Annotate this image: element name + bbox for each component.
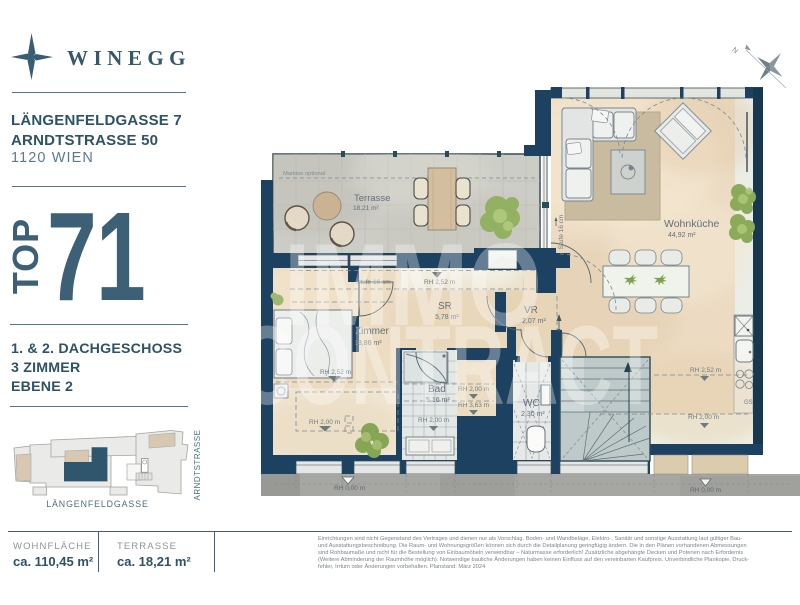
svg-text:Terrasse: Terrasse [354,193,390,204]
svg-text:SR: SR [438,301,452,312]
svg-text:5,16 m²: 5,16 m² [426,397,450,404]
svg-text:CONTRACT: CONTRACT [239,303,658,428]
svg-text:Bad: Bad [428,384,446,395]
svg-text:GS: GS [744,400,753,406]
svg-text:VR: VR [524,305,538,316]
svg-text:2,07 m²: 2,07 m² [522,318,546,325]
svg-text:18,21 m²: 18,21 m² [353,205,379,212]
svg-text:18,86 m²: 18,86 m² [354,340,382,347]
svg-text:RH 2,00 m: RH 2,00 m [309,419,340,426]
svg-text:TOP: TOP [9,218,46,294]
svg-text:Zimmer: Zimmer [355,326,390,337]
svg-text:N: N [730,47,738,56]
svg-text:Stufe 16 cm: Stufe 16 cm [558,215,565,250]
svg-text:ARNDTSTRASSE: ARNDTSTRASSE [193,430,202,501]
svg-text:RH 0,00 m: RH 0,00 m [334,485,365,492]
svg-text:5,78 m²: 5,78 m² [435,314,459,321]
svg-text:IMMO: IMMO [284,219,542,350]
svg-text:RH 3,63 m: RH 3,63 m [458,402,489,409]
svg-text:RH 2,00 m: RH 2,00 m [688,414,719,421]
svg-text:RH 2,00 m: RH 2,00 m [458,386,489,393]
svg-text:44,92 m²: 44,92 m² [668,232,696,239]
svg-text:Markise optional: Markise optional [283,171,325,177]
svg-text:WC: WC [523,398,540,409]
svg-text:RH 2,52 m: RH 2,52 m [424,279,455,286]
svg-text:Wohnküche: Wohnküche [664,218,719,230]
svg-text:RH 2,52 m: RH 2,52 m [320,369,351,376]
svg-text:2,30 m²: 2,30 m² [521,411,545,418]
svg-text:RH 2,00 m: RH 2,00 m [418,417,449,424]
svg-text:RH 0,00 m: RH 0,00 m [690,487,721,494]
svg-text:WINEGG: WINEGG [67,46,191,70]
svg-text:Stufe 16 cm: Stufe 16 cm [356,279,391,286]
svg-text:RH 2,52 m: RH 2,52 m [690,367,721,374]
